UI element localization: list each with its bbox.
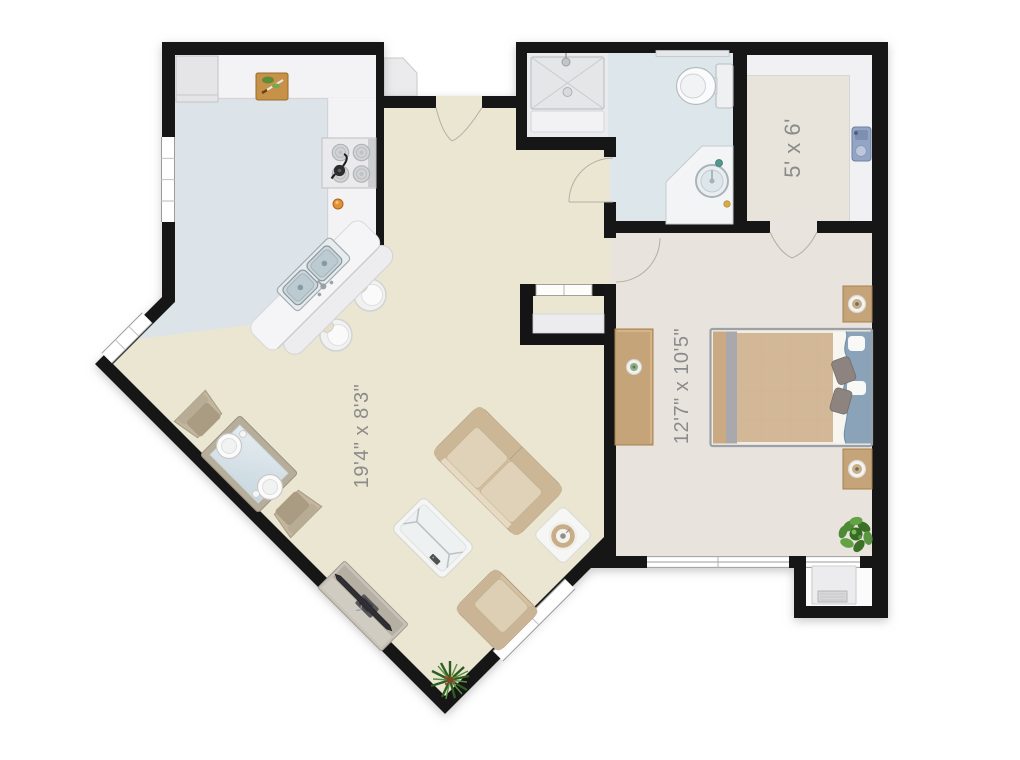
svg-text:19'4" x 8'3": 19'4" x 8'3" [351, 384, 373, 489]
svg-text:5' x 6': 5' x 6' [780, 118, 805, 178]
svg-text:12'7" x 10'5": 12'7" x 10'5" [671, 328, 693, 444]
